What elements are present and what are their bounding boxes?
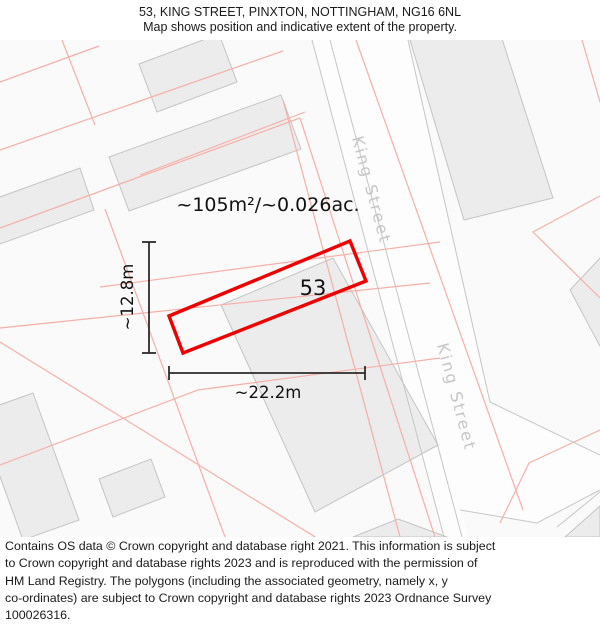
height-dimension-label: ~12.8m (118, 264, 137, 331)
copyright-line: HM Land Registry. The polygons (includin… (5, 573, 597, 590)
copyright-line: Contains OS data © Crown copyright and d… (5, 538, 597, 555)
copyright-note: Contains OS data © Crown copyright and d… (5, 538, 597, 624)
map-canvas: King Street King Street ~105m²/~0.026ac.… (0, 40, 600, 537)
copyright-line: to Crown copyright and database rights 2… (5, 555, 597, 572)
width-dimension-label: ~22.2m (235, 383, 302, 402)
copyright-line: 100026316. (5, 607, 597, 624)
property-map-page: 53, KING STREET, PINXTON, NOTTINGHAM, NG… (0, 0, 600, 625)
plot-number-label: 53 (300, 276, 327, 300)
area-label: ~105m²/~0.026ac. (176, 194, 359, 216)
map-title: 53, KING STREET, PINXTON, NOTTINGHAM, NG… (0, 0, 600, 20)
copyright-line: co-ordinates) are subject to Crown copyr… (5, 590, 597, 607)
map-subtitle: Map shows position and indicative extent… (0, 20, 600, 35)
header: 53, KING STREET, PINXTON, NOTTINGHAM, NG… (0, 0, 600, 40)
